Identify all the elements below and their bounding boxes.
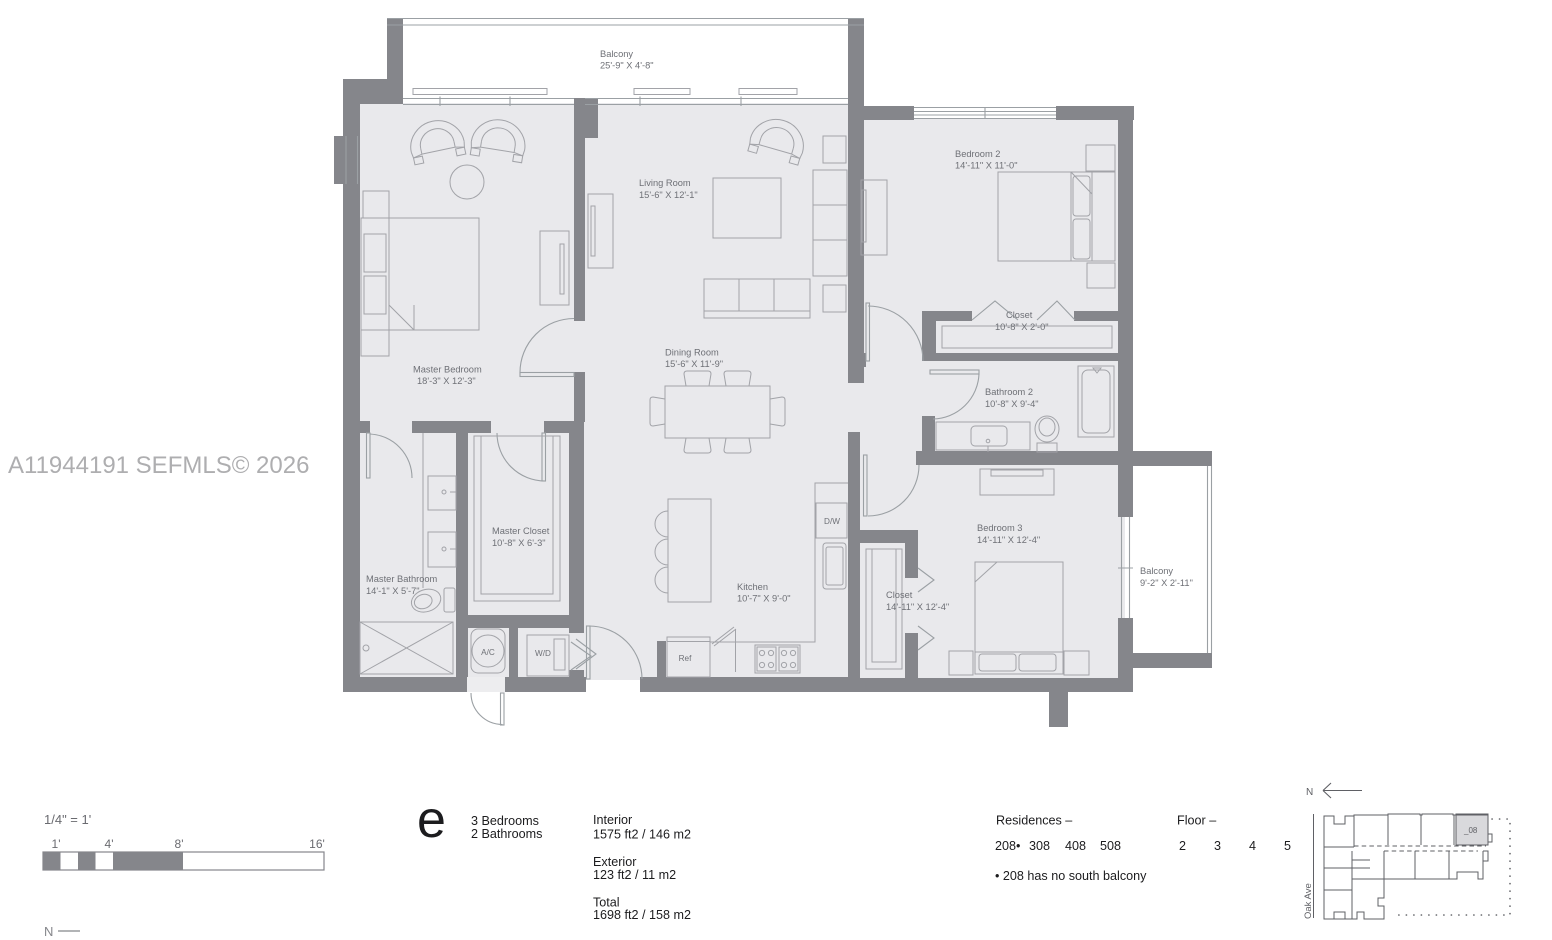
svg-text:15'-6" X 11'-9": 15'-6" X 11'-9" bbox=[665, 359, 723, 369]
svg-text:Bedroom 3: Bedroom 3 bbox=[977, 523, 1022, 533]
svg-text:1': 1' bbox=[52, 837, 61, 851]
svg-text:W/D: W/D bbox=[535, 649, 551, 658]
svg-text:Bedroom 2: Bedroom 2 bbox=[955, 149, 1000, 159]
svg-text:1575 ft2 / 146 m2: 1575 ft2 / 146 m2 bbox=[593, 828, 691, 842]
svg-text:14'-1" X 5'-7": 14'-1" X 5'-7" bbox=[366, 586, 420, 596]
svg-text:5: 5 bbox=[1284, 839, 1291, 853]
svg-text:Residences –: Residences – bbox=[996, 814, 1072, 828]
svg-text:Kitchen: Kitchen bbox=[737, 582, 768, 592]
svg-text:15'-6" X 12'-1": 15'-6" X 12'-1" bbox=[639, 190, 698, 200]
svg-text:Dining Room: Dining Room bbox=[665, 348, 719, 358]
svg-text:Master Bathroom: Master Bathroom bbox=[366, 574, 438, 584]
svg-text:25'-9" X 4'-8": 25'-9" X 4'-8" bbox=[600, 61, 654, 71]
svg-text:N: N bbox=[1306, 787, 1313, 798]
svg-text:Exterior: Exterior bbox=[593, 855, 636, 869]
svg-text:• 208 has no south balcony: • 208 has no south balcony bbox=[995, 869, 1147, 883]
svg-text:9'-2" X 2'-11": 9'-2" X 2'-11" bbox=[1140, 578, 1193, 588]
svg-text:3 Bedrooms: 3 Bedrooms bbox=[471, 814, 539, 828]
svg-text:2: 2 bbox=[1179, 839, 1186, 853]
svg-text:1698 ft2 / 158 m2: 1698 ft2 / 158 m2 bbox=[593, 908, 691, 922]
svg-text:123 ft2 / 11 m2: 123 ft2 / 11 m2 bbox=[593, 868, 676, 882]
svg-text:18'-3" X 12'-3": 18'-3" X 12'-3" bbox=[417, 376, 476, 386]
svg-text:16': 16' bbox=[309, 837, 325, 851]
svg-text:D/W: D/W bbox=[824, 517, 840, 526]
svg-text:14'-11" X 12'-4": 14'-11" X 12'-4" bbox=[886, 602, 949, 612]
svg-text:e: e bbox=[417, 791, 446, 849]
svg-text:Master Closet: Master Closet bbox=[492, 526, 550, 536]
svg-text:Bathroom 2: Bathroom 2 bbox=[985, 387, 1033, 397]
svg-text:10'-7" X 9'-0": 10'-7" X 9'-0" bbox=[737, 594, 791, 604]
svg-text:208•: 208• bbox=[995, 839, 1020, 853]
svg-text:10'-8" X 9'-4": 10'-8" X 9'-4" bbox=[985, 399, 1039, 409]
svg-text:N: N bbox=[44, 924, 53, 939]
svg-text:14'-11" X 12'-4": 14'-11" X 12'-4" bbox=[977, 535, 1040, 545]
svg-text:10'-8" X 2'-0": 10'-8" X 2'-0" bbox=[995, 322, 1049, 332]
svg-text:Closet: Closet bbox=[1006, 310, 1033, 320]
svg-text:508: 508 bbox=[1100, 839, 1121, 853]
svg-text:Floor –: Floor – bbox=[1177, 814, 1216, 828]
svg-text:Living Room: Living Room bbox=[639, 178, 691, 188]
svg-text:10'-8" X 6'-3": 10'-8" X 6'-3" bbox=[492, 538, 546, 548]
svg-text:14'-11" X 11'-0": 14'-11" X 11'-0" bbox=[955, 161, 1018, 171]
svg-text:8': 8' bbox=[175, 837, 184, 851]
svg-text:_08: _08 bbox=[1463, 826, 1478, 835]
svg-text:Master Bedroom: Master Bedroom bbox=[413, 365, 482, 375]
svg-text:408: 408 bbox=[1065, 839, 1086, 853]
svg-text:Interior: Interior bbox=[593, 813, 632, 827]
svg-text:1/4" = 1': 1/4" = 1' bbox=[44, 812, 91, 827]
svg-text:4: 4 bbox=[1249, 839, 1256, 853]
svg-text:Ref: Ref bbox=[679, 654, 692, 663]
svg-text:A11944191 SEFMLS© 2026: A11944191 SEFMLS© 2026 bbox=[8, 452, 309, 479]
svg-text:3: 3 bbox=[1214, 839, 1221, 853]
svg-text:Closet: Closet bbox=[886, 590, 913, 600]
svg-text:Balcony: Balcony bbox=[1140, 566, 1173, 576]
svg-text:Oak Ave: Oak Ave bbox=[1303, 883, 1314, 919]
svg-text:4': 4' bbox=[105, 837, 114, 851]
svg-text:2 Bathrooms: 2 Bathrooms bbox=[471, 827, 542, 841]
svg-text:A/C: A/C bbox=[481, 648, 495, 657]
svg-text:Balcony: Balcony bbox=[600, 49, 633, 59]
svg-text:308: 308 bbox=[1029, 839, 1050, 853]
